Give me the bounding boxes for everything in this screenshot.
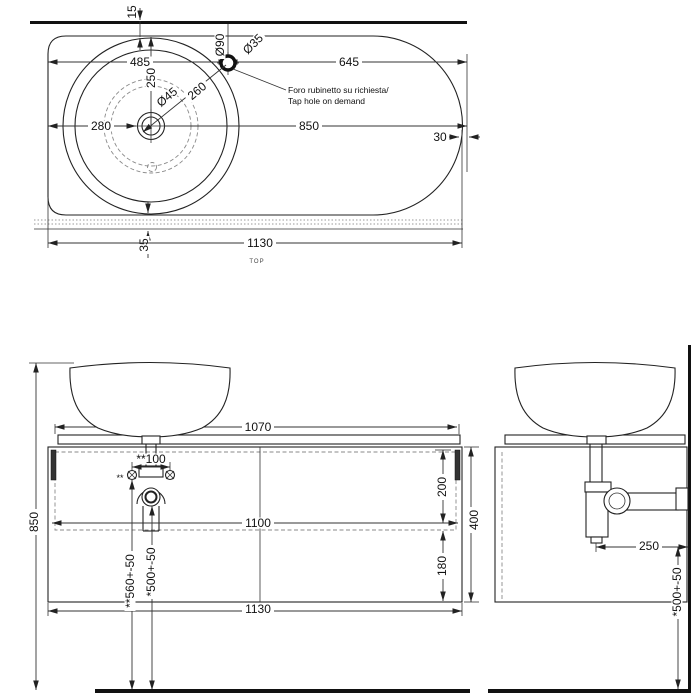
svg-text:**560+-50: **560+-50 <box>123 554 137 608</box>
tap-hole-note-line1: Foro rubinetto su richiesta/ <box>288 85 389 95</box>
svg-text:1130: 1130 <box>245 602 271 616</box>
svg-text:250: 250 <box>144 68 158 88</box>
dim-label-645: 645 <box>336 55 362 69</box>
top-view: 250 485 280 850 645 30 <box>30 3 480 265</box>
svg-text:*500+-50: *500+-50 <box>144 547 158 596</box>
dim-label-250-side: 250 <box>636 539 662 553</box>
svg-text:850: 850 <box>27 512 41 532</box>
svg-text:200: 200 <box>435 477 449 497</box>
dim-label-400: 400 <box>467 507 481 533</box>
siphon-elbow-outer <box>604 488 630 514</box>
dim-label-100: **100 <box>132 452 170 466</box>
svg-text:400: 400 <box>467 510 481 530</box>
siphon-cup-bottom <box>591 537 602 543</box>
dim-label-280: 280 <box>88 119 114 133</box>
svg-text:1100: 1100 <box>245 516 271 530</box>
floor-line-side <box>488 689 691 693</box>
dim-label-35: 35 <box>137 236 151 254</box>
svg-text:**100: **100 <box>136 452 166 466</box>
shelf-front <box>58 435 460 444</box>
svg-text:30: 30 <box>433 130 447 144</box>
wall-line-top <box>30 21 467 24</box>
svg-text:250: 250 <box>639 539 659 553</box>
drain-flange-front <box>142 436 160 444</box>
svg-text:645: 645 <box>339 55 359 69</box>
wall-escutcheon <box>676 488 688 510</box>
wall-line-side <box>688 345 691 693</box>
dim-label-180: 180 <box>435 553 449 579</box>
dim-label-1100: 1100 <box>242 516 274 530</box>
svg-text:*500+-50: *500+-50 <box>670 567 684 616</box>
view-label-top: TOP <box>249 259 264 265</box>
side-view: 250 *500+-50 <box>488 345 691 693</box>
tap-hole-note-line2: Tap hole on demand <box>288 96 365 106</box>
svg-text:Ø90: Ø90 <box>213 33 227 56</box>
siphon-nut-front <box>139 466 163 477</box>
dim-label-200: 200 <box>435 474 449 500</box>
vessel-basin-side <box>515 363 675 438</box>
vessel-basin-front <box>70 363 230 438</box>
drawing-canvas: 250 485 280 850 645 30 <box>0 0 700 700</box>
dim-label-15: 15 <box>125 3 139 21</box>
dim-label-560: **560+-50 <box>123 551 137 611</box>
floor-line-front <box>95 689 470 693</box>
siphon-nut-side <box>585 482 611 492</box>
dim-label-850-height: 850 <box>27 509 41 535</box>
drain-flange-side <box>587 436 606 444</box>
svg-text:1130: 1130 <box>247 236 273 250</box>
dim-label-850-top: 850 <box>296 119 322 133</box>
dim-label-dia90: Ø90 <box>213 31 227 59</box>
svg-text:850: 850 <box>299 119 319 133</box>
svg-text:485: 485 <box>130 55 150 69</box>
technical-drawing-sheet: 250 485 280 850 645 30 <box>0 0 700 700</box>
front-view: 1070 **100 ** <box>27 363 481 694</box>
dim-label-1130-top: 1130 <box>244 236 276 250</box>
left-door-handle <box>51 450 56 480</box>
svg-text:1070: 1070 <box>245 420 272 434</box>
dim-label-1130-front: 1130 <box>242 602 274 616</box>
screw-asterisk-mark: ** <box>116 473 124 483</box>
svg-text:35: 35 <box>137 238 151 252</box>
dim-label-500-front: *500+-50 <box>144 545 158 599</box>
svg-text:180: 180 <box>435 556 449 576</box>
dim-label-485: 485 <box>127 55 153 69</box>
right-door-handle <box>455 450 460 480</box>
dim-label-30: 30 <box>431 130 449 144</box>
dim-label-500-side: *500+-50 <box>670 565 684 619</box>
svg-text:15: 15 <box>125 5 139 19</box>
dim-label-1070: 1070 <box>242 420 274 434</box>
svg-text:280: 280 <box>91 119 111 133</box>
